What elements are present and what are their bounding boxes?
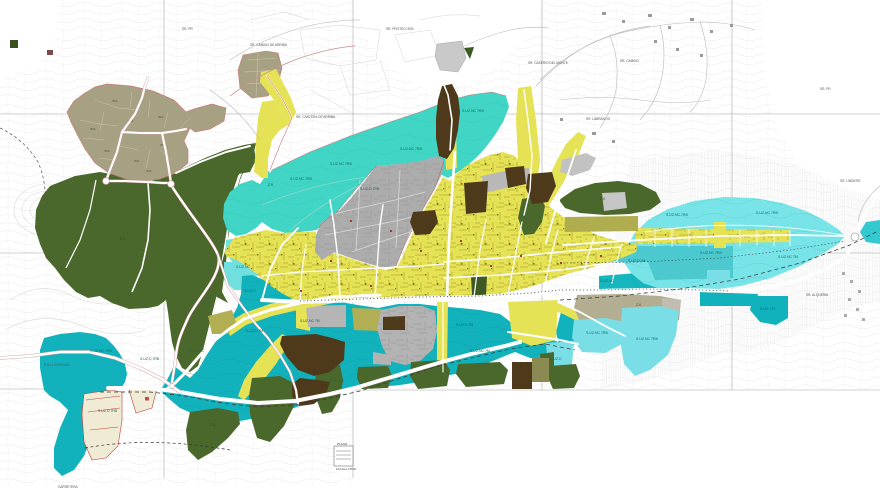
svg-text:PLANO: PLANO <box>337 442 348 446</box>
svg-text:7RA: 7RA <box>90 127 96 131</box>
svg-text:S.UZ.NC 7M: S.UZ.NC 7M <box>778 255 798 259</box>
svg-text:S.UZ.NC 7RB: S.UZ.NC 7RB <box>700 251 722 255</box>
svg-text:S.UZ.NC: S.UZ.NC <box>190 349 204 353</box>
svg-text:S.UZ.NC 7M: S.UZ.NC 7M <box>300 319 320 323</box>
svg-text:CARRETERA: CARRETERA <box>58 485 79 489</box>
svg-text:S.UZ. 7M: S.UZ. 7M <box>760 307 775 311</box>
svg-text:SR. PR: SR. PR <box>820 87 831 91</box>
svg-text:Z.V.: Z.V. <box>120 237 126 241</box>
svg-text:S.UZ.D: S.UZ.D <box>550 357 562 361</box>
svg-text:SR. PROTECCION: SR. PROTECCION <box>386 27 414 31</box>
svg-text:SR. LINDERO: SR. LINDERO <box>840 179 861 183</box>
svg-text:S.UZ.NC 7RB: S.UZ.NC 7RB <box>586 331 608 335</box>
svg-text:Z.V.: Z.V. <box>636 303 642 307</box>
svg-text:S.UZ.D 7RB: S.UZ.D 7RB <box>360 187 380 191</box>
svg-text:S.UZ.NC 7RB: S.UZ.NC 7RB <box>756 211 778 215</box>
svg-text:ESCALA 1:5000: ESCALA 1:5000 <box>336 467 357 471</box>
svg-text:S.UZ.NC 7M: S.UZ.NC 7M <box>470 349 490 353</box>
svg-text:SR. CAMINO: SR. CAMINO <box>620 59 639 63</box>
svg-text:7RA: 7RA <box>112 99 118 103</box>
svg-text:Z.V.: Z.V. <box>210 423 216 427</box>
svg-text:S.UZ.D 7M: S.UZ.D 7M <box>246 329 263 333</box>
svg-text:S.UZ.D 7M: S.UZ.D 7M <box>628 259 645 263</box>
svg-text:S.UZ.NC: S.UZ.NC <box>236 265 250 269</box>
svg-text:S.UZ.D 7RB: S.UZ.D 7RB <box>98 409 118 413</box>
svg-text:7RA: 7RA <box>134 159 140 163</box>
svg-text:Z.V.: Z.V. <box>600 197 606 201</box>
svg-text:S.UZ.NC: S.UZ.NC <box>330 379 344 383</box>
svg-text:Z.V.: Z.V. <box>268 183 274 187</box>
svg-text:7RA: 7RA <box>158 115 164 119</box>
svg-text:S.UZ.NC 7RB: S.UZ.NC 7RB <box>330 162 352 166</box>
svg-text:S.UZ.NC 7RB: S.UZ.NC 7RB <box>636 337 658 341</box>
svg-text:S.UZ.NC 7RB: S.UZ.NC 7RB <box>290 177 312 181</box>
svg-text:SR. CAMINO DE ARRIBA: SR. CAMINO DE ARRIBA <box>250 43 288 47</box>
svg-text:S.UZ.NC 7RB: S.UZ.NC 7RB <box>666 213 688 217</box>
svg-text:S.UZ.NC 7RB: S.UZ.NC 7RB <box>400 147 422 151</box>
svg-text:SR. PR: SR. PR <box>182 27 193 31</box>
svg-text:SR. LABRANTIO: SR. LABRANTIO <box>586 117 611 121</box>
svg-text:S.UZ.NC: S.UZ.NC <box>600 279 614 283</box>
svg-text:SR. CASERIO DEL MONTE: SR. CASERIO DEL MONTE <box>528 61 568 65</box>
svg-text:S.UZ.D 7RB: S.UZ.D 7RB <box>140 357 160 361</box>
svg-text:S.UZ.D: S.UZ.D <box>244 289 256 293</box>
svg-text:S.UZ.NC 7RB: S.UZ.NC 7RB <box>90 349 112 353</box>
svg-text:7RA: 7RA <box>104 149 110 153</box>
svg-text:SR. CANTERA DE ARRIBA: SR. CANTERA DE ARRIBA <box>296 115 336 119</box>
svg-text:S.N.U. ESPECIAL: S.N.U. ESPECIAL <box>44 363 70 367</box>
svg-text:SR. ALQUERIA: SR. ALQUERIA <box>806 293 829 297</box>
svg-text:S.UZ.D 7M: S.UZ.D 7M <box>456 323 473 327</box>
svg-text:S.UZ.NC 7RB: S.UZ.NC 7RB <box>462 109 484 113</box>
svg-text:7RA: 7RA <box>146 169 152 173</box>
